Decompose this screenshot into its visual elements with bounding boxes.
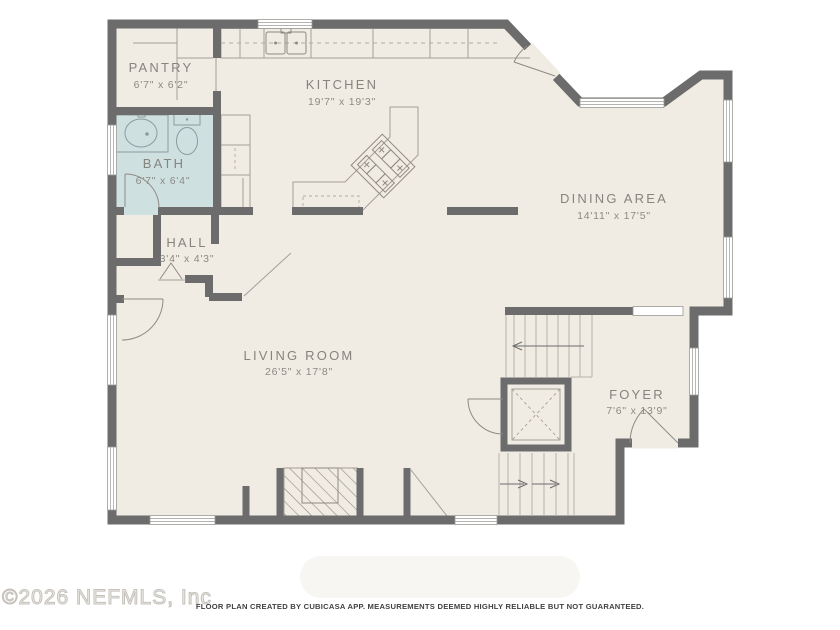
window-dining-top	[580, 99, 664, 108]
room-label-foyer: FOYER	[609, 387, 665, 402]
room-label-kitchen: KITCHEN	[306, 77, 378, 92]
room-label-pantry: PANTRY	[129, 60, 194, 75]
window-dining-right-1	[724, 100, 733, 162]
cased-opening-foyer	[633, 307, 683, 316]
window-dining-right-2	[724, 237, 733, 298]
room-dims-dining: 14'11" x 17'5"	[577, 210, 651, 222]
window-living-bottom-1	[150, 516, 215, 525]
floorplan-page: PANTRY 6'7" x 6'2" KITCHEN 19'7" x 19'3"…	[0, 0, 840, 630]
cubicasa-disclaimer: FLOOR PLAN CREATED BY CUBICASA APP. MEAS…	[0, 602, 840, 611]
room-label-hall: HALL	[166, 235, 207, 250]
room-dims-pantry: 6'7" x 6'2"	[134, 79, 189, 91]
room-dims-hall: 3'4" x 4'3"	[160, 253, 215, 265]
window-living-left-2	[108, 447, 117, 510]
elevator	[504, 381, 568, 448]
room-dims-bath: 6'7" x 6'4"	[136, 175, 191, 187]
window-living-left-1	[108, 315, 117, 385]
floor-plan: PANTRY 6'7" x 6'2" KITCHEN 19'7" x 19'3"…	[0, 0, 840, 630]
fireplace	[284, 468, 357, 517]
window-living-bottom-2	[455, 516, 497, 525]
window-foyer-right	[690, 348, 699, 395]
room-dims-foyer: 7'6" x 13'9"	[606, 405, 667, 417]
window-top	[258, 20, 312, 29]
room-label-living: LIVING ROOM	[244, 348, 355, 363]
room-dims-living: 26'5" x 17'8"	[265, 366, 333, 378]
room-label-dining: DINING AREA	[560, 191, 668, 206]
room-label-bath: BATH	[143, 156, 186, 171]
window-bath-left	[108, 125, 117, 175]
room-dims-kitchen: 19'7" x 19'3"	[308, 96, 376, 108]
